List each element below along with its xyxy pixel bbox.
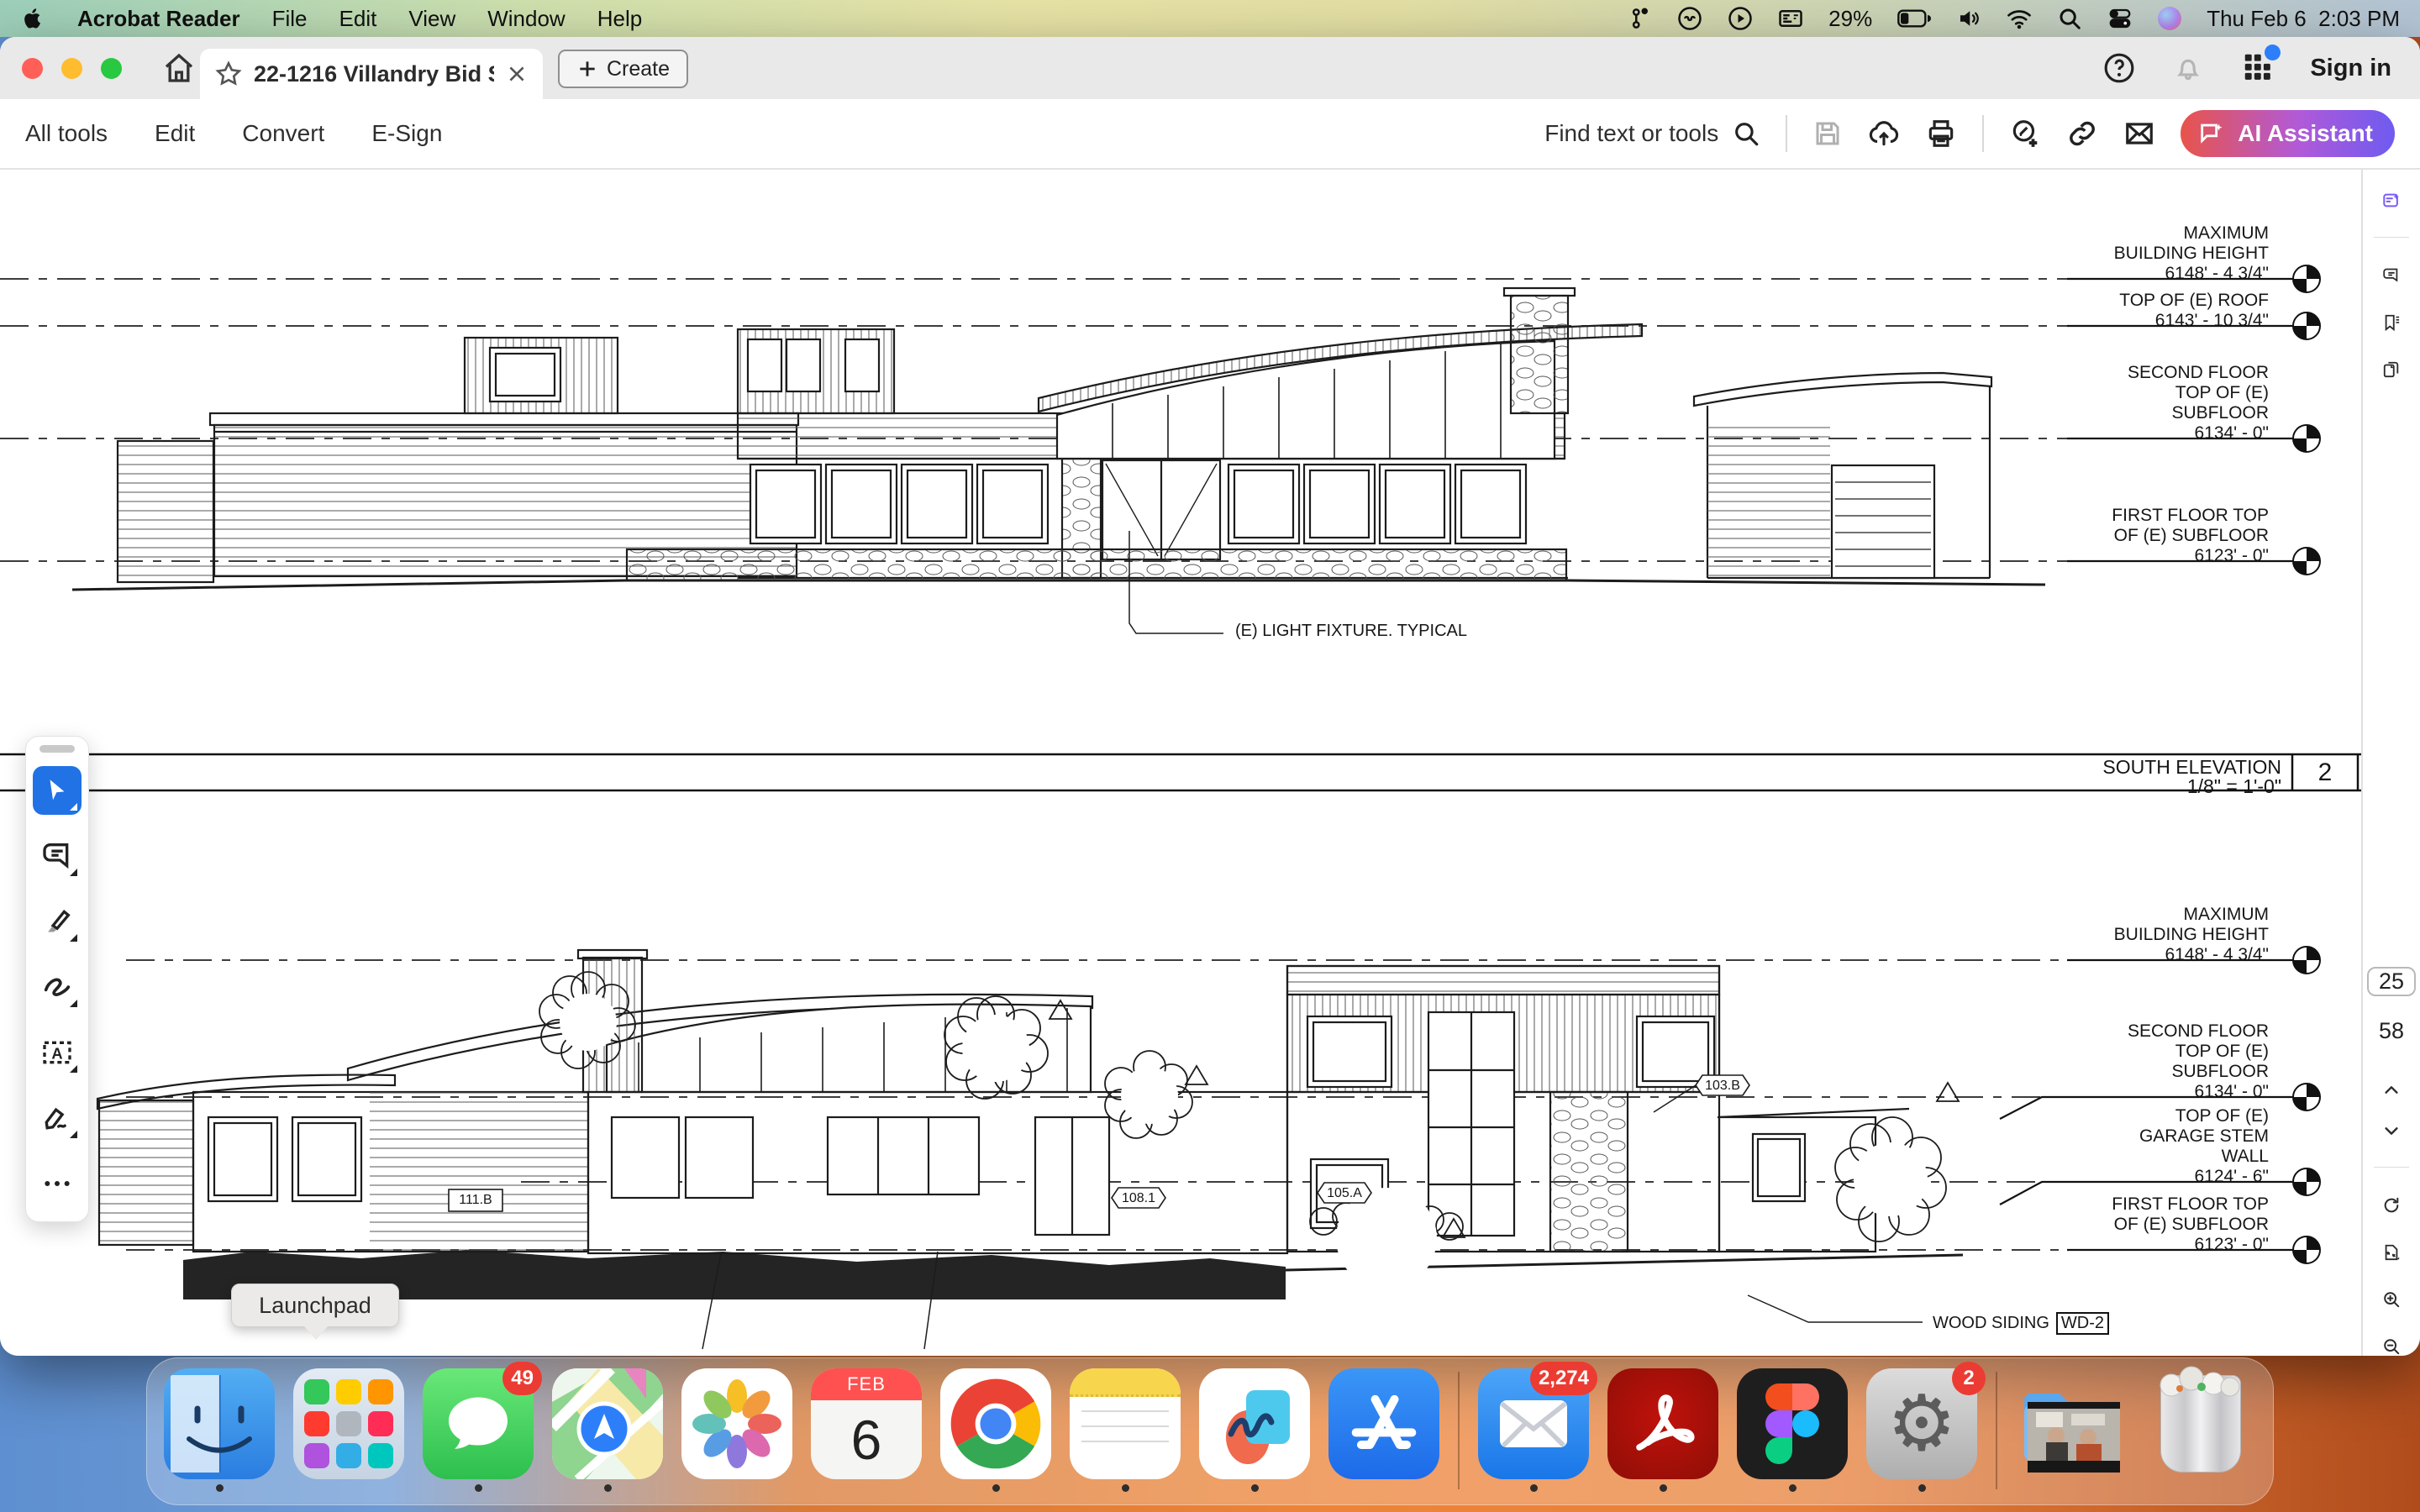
ellipsis-icon (40, 1167, 74, 1200)
tool-expand-triangle (70, 1065, 77, 1073)
dock-calendar[interactable]: FEB 6 (811, 1368, 922, 1492)
comment-bubble-icon (40, 839, 74, 873)
spotlight-search-icon[interactable] (2057, 6, 2082, 31)
draw-tool[interactable] (33, 963, 82, 1011)
dock-figma[interactable] (1737, 1368, 1848, 1492)
running-indicator (1122, 1484, 1129, 1492)
email-icon[interactable] (2123, 118, 2155, 150)
running-indicator (1918, 1484, 1926, 1492)
creative-cloud-icon[interactable] (1677, 6, 1702, 31)
tool-expand-triangle (70, 803, 77, 811)
keyboard-input-icon[interactable] (1778, 6, 1803, 31)
help-icon[interactable] (2103, 52, 2135, 84)
messages-badge: 49 (502, 1362, 542, 1395)
trash-full-icon (2145, 1368, 2256, 1479)
share-link-icon[interactable] (2066, 118, 2098, 150)
tool-expand-triangle (70, 1000, 77, 1007)
datum-symbol (2291, 264, 2322, 294)
ai-assistant-button[interactable]: AI Assistant (2181, 110, 2395, 157)
tooltip-label: Launchpad (259, 1293, 371, 1319)
running-indicator (1660, 1484, 1667, 1492)
level-label-first-floor-top: FIRST FLOOR TOPOF (E) SUBFLOOR6123' - 0" (1916, 506, 2269, 566)
datum-symbol (2291, 423, 2322, 454)
plus-icon (576, 58, 598, 80)
tool-expand-triangle (70, 869, 77, 876)
photos-icon (681, 1368, 792, 1479)
dock-chrome[interactable] (940, 1368, 1051, 1492)
tab-title: 22-1216 Villandry Bid S... (254, 61, 494, 87)
cloud-upload-icon[interactable] (1868, 118, 1900, 150)
settings-badge: 2 (1952, 1362, 1986, 1395)
traffic-lights (22, 58, 122, 79)
running-indicator (475, 1484, 482, 1492)
find-label: Find text or tools (1544, 120, 1718, 147)
find-text-or-tools[interactable]: Find text or tools (1544, 119, 1760, 148)
siri-icon[interactable] (2158, 7, 2181, 30)
dock-mail[interactable]: 2,274 (1478, 1368, 1589, 1492)
app-store-icon (1328, 1368, 1439, 1479)
menu-edit[interactable]: Edit (339, 6, 377, 32)
dock-downloads-folder[interactable] (2016, 1368, 2127, 1492)
running-indicator (1789, 1484, 1797, 1492)
ai-assistant-label: AI Assistant (2238, 120, 2373, 147)
sidebar-divider (2374, 1167, 2409, 1168)
level-label-second-floor-top: SECOND FLOORTOP OF (E)SUBFLOOR6134' - 0" (1916, 363, 2269, 444)
zoom-out-icon[interactable] (2376, 1337, 2407, 1356)
star-icon[interactable] (215, 60, 242, 87)
level-label-first-floor-bottom: FIRST FLOOR TOPOF (E) SUBFLOOR6123' - 0" (1916, 1194, 2269, 1255)
dock-divider (1458, 1372, 1460, 1489)
macos-menu-bar: Acrobat Reader File Edit View Window Hel… (0, 0, 2420, 37)
menubar-clock[interactable]: Thu Feb 6 2:03 PM (2207, 6, 2400, 32)
apple-logo-icon[interactable] (20, 6, 45, 31)
play-circle-icon[interactable] (1728, 6, 1753, 31)
toolbar-divider (1786, 115, 1787, 152)
menu-view[interactable]: View (408, 6, 455, 32)
chrome-icon (940, 1368, 1051, 1479)
dock: 49 (146, 1357, 2274, 1505)
sign-tool[interactable] (33, 1094, 82, 1142)
mail-badge: 2,274 (1530, 1362, 1597, 1395)
datum-symbol (2291, 945, 2322, 975)
quick-tools-toolbar: A (25, 736, 89, 1222)
dock-acrobat[interactable] (1607, 1368, 1718, 1492)
light-fixture-note: (E) LIGHT FIXTURE. TYPICAL (1235, 622, 1467, 641)
fit-page-icon[interactable] (2376, 1243, 2407, 1262)
sign-in-button[interactable]: Sign in (2310, 55, 2391, 82)
calendar-month: FEB (811, 1368, 922, 1400)
total-pages: 58 (2379, 1018, 2404, 1044)
running-indicator (604, 1484, 612, 1492)
save-icon[interactable] (1812, 118, 1843, 149)
toolbar-drag-handle[interactable] (39, 745, 75, 753)
freehand-draw-icon (40, 970, 74, 1004)
launchpad-icon (293, 1368, 404, 1479)
ai-chat-icon (2197, 119, 2226, 148)
toolbar-divider (1982, 115, 1984, 152)
level-label-max-height-bottom: MAXIMUMBUILDING HEIGHT6148' - 4 3/4" (1916, 905, 2269, 965)
acrobat-window: 22-1216 Villandry Bid S... Create Sign i… (0, 37, 2420, 1356)
battery-icon (1897, 6, 1931, 31)
minimize-window-button[interactable] (61, 58, 82, 79)
zoom-window-button[interactable] (101, 58, 122, 79)
pdf-page[interactable]: MAXIMUMBUILDING HEIGHT6148' - 4 3/4" TOP… (0, 170, 2361, 1356)
shortcuts-menu-icon[interactable] (1627, 6, 1652, 31)
datum-symbol (2291, 546, 2322, 576)
level-label-garage-stem-wall: TOP OF (E)GARAGE STEMWALL6124' - 6" (1916, 1106, 2269, 1187)
running-indicator (1530, 1484, 1538, 1492)
dock-finder[interactable] (164, 1368, 275, 1492)
tool-expand-triangle (70, 934, 77, 942)
calendar-icon: FEB 6 (811, 1368, 922, 1479)
ai-assistant-panel-icon[interactable] (2376, 192, 2407, 210)
app-grid-icon[interactable] (2241, 50, 2273, 87)
convert-menu[interactable]: Convert (242, 120, 324, 147)
level-label-second-floor-bottom: SECOND FLOORTOP OF (E)SUBFLOOR6134' - 0" (1916, 1021, 2269, 1102)
running-indicator (992, 1484, 1000, 1492)
highlight-tool[interactable] (33, 897, 82, 946)
comment-tool[interactable] (33, 832, 82, 880)
gear-icon: ⚙ (1887, 1385, 1956, 1462)
sheet-number: 2 (2292, 756, 2358, 790)
tab-bar: 22-1216 Villandry Bid S... Create Sign i… (0, 37, 2420, 99)
menu-window[interactable]: Window (487, 6, 565, 32)
right-tools-sidebar: 25 58 (2361, 170, 2420, 1356)
level-label-max-height-top: MAXIMUMBUILDING HEIGHT6148' - 4 3/4" (1916, 223, 2269, 284)
volume-icon[interactable] (1956, 6, 1981, 31)
edit-menu[interactable]: Edit (155, 120, 195, 147)
home-icon[interactable] (162, 51, 196, 85)
tool-expand-triangle (70, 1131, 77, 1138)
notification-dot (2265, 45, 2281, 60)
acrobat-icon (1607, 1368, 1718, 1479)
battery-percent: 29% (1828, 6, 1872, 32)
running-indicator (1251, 1484, 1259, 1492)
select-tool[interactable] (33, 766, 82, 815)
dock-maps[interactable] (552, 1368, 663, 1492)
keynote-tag-108-1: 108.1 (1112, 1191, 1165, 1206)
finder-icon (164, 1368, 275, 1479)
datum-symbol (2291, 311, 2322, 341)
dock-settings[interactable]: 2 ⚙ (1866, 1368, 1977, 1492)
keynote-tag-105A: 105.A (1318, 1186, 1371, 1201)
maps-icon (552, 1368, 663, 1479)
folder-with-video-icon (2016, 1368, 2127, 1479)
datum-symbol (2291, 1235, 2322, 1265)
svg-text:A: A (51, 1045, 62, 1063)
rotate-page-icon[interactable] (2376, 1196, 2407, 1215)
search-icon (1732, 119, 1760, 148)
dock-notes[interactable] (1070, 1368, 1181, 1492)
dock-launchpad[interactable] (293, 1368, 404, 1492)
create-label: Create (607, 57, 670, 81)
freeform-icon (1199, 1368, 1310, 1479)
launchpad-tooltip: Launchpad (231, 1284, 399, 1327)
esign-menu[interactable]: E-Sign (371, 120, 442, 147)
sidebar-divider (2374, 237, 2409, 238)
create-button[interactable]: Create (558, 50, 688, 88)
menubar-app-name[interactable]: Acrobat Reader (77, 6, 240, 32)
notes-icon (1070, 1368, 1181, 1479)
all-tools-menu[interactable]: All tools (25, 120, 108, 147)
keynote-tag-103B: 103.B (1696, 1079, 1749, 1094)
current-page-input[interactable]: 25 (2367, 967, 2416, 996)
running-indicator (216, 1484, 224, 1492)
wood-siding-note: WOOD SIDINGWD-2 (1933, 1312, 2109, 1335)
control-center-icon[interactable] (2107, 6, 2133, 31)
calendar-day: 6 (811, 1400, 922, 1479)
sheet-title: SOUTH ELEVATION 1/8" = 1'-0" (1933, 758, 2281, 796)
close-tab-icon[interactable] (506, 63, 528, 85)
print-icon[interactable] (1925, 118, 1957, 150)
datum-symbol (2291, 1167, 2322, 1197)
menu-file[interactable]: File (272, 6, 308, 32)
request-signature-icon[interactable] (2009, 118, 2041, 150)
notifications-bell-icon[interactable] (2172, 52, 2204, 84)
figma-icon (1737, 1368, 1848, 1479)
zoom-in-icon[interactable] (2376, 1290, 2407, 1309)
bookmarks-panel-icon[interactable] (2376, 313, 2407, 332)
text-box-icon: A (40, 1036, 74, 1069)
comments-panel-icon[interactable] (2376, 266, 2407, 285)
more-tools[interactable] (33, 1159, 82, 1208)
dock-photos[interactable] (681, 1368, 792, 1492)
fountain-pen-icon (40, 1101, 74, 1135)
dock-freeform[interactable] (1199, 1368, 1310, 1492)
page-thumbnails-icon[interactable] (2376, 360, 2407, 379)
acrobat-toolbar: All tools Edit Convert E-Sign Find text … (0, 99, 2420, 170)
dock-messages[interactable]: 49 (423, 1368, 534, 1492)
level-label-top-of-roof: TOP OF (E) ROOF6143' - 10 3/4" (1916, 291, 2269, 331)
wd2-tag: WD-2 (2056, 1312, 2109, 1335)
dock-trash[interactable] (2145, 1368, 2256, 1492)
highlighter-icon (40, 905, 74, 938)
dock-divider (1996, 1372, 1997, 1489)
previous-page-chevron-icon[interactable] (2376, 1081, 2407, 1100)
datum-symbol (2291, 1082, 2322, 1112)
next-page-chevron-icon[interactable] (2376, 1121, 2407, 1140)
text-box-tool[interactable]: A (33, 1028, 82, 1077)
cursor-arrow-icon (43, 776, 71, 805)
keynote-tag-111B: 111.B (449, 1193, 502, 1208)
menu-help[interactable]: Help (597, 6, 642, 32)
document-tab[interactable]: 22-1216 Villandry Bid S... (200, 49, 543, 99)
wifi-icon[interactable] (2007, 6, 2032, 31)
close-window-button[interactable] (22, 58, 43, 79)
dock-app-store[interactable] (1328, 1368, 1439, 1492)
